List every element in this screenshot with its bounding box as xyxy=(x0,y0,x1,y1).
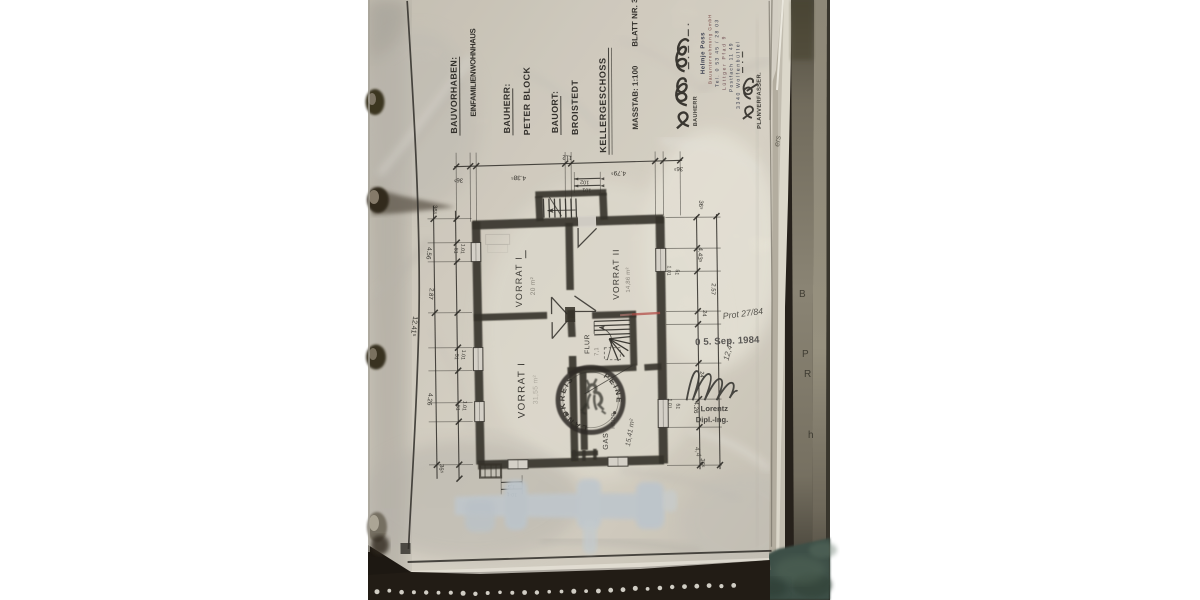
svg-text:51: 51 xyxy=(454,404,461,410)
svg-text:51: 51 xyxy=(452,248,459,254)
svg-text:24: 24 xyxy=(701,310,707,317)
svg-text:Helmje Poss: Helmje Poss xyxy=(700,32,706,74)
svg-text:14,86 m²: 14,86 m² xyxy=(626,267,632,292)
svg-text:1.01: 1.01 xyxy=(459,349,466,360)
svg-text:BLATT NR. 3: BLATT NR. 3 xyxy=(630,0,639,47)
svg-text:7,1: 7,1 xyxy=(594,347,600,356)
svg-text:4.79⁵: 4.79⁵ xyxy=(610,169,626,177)
svg-text:4.43⁵: 4.43⁵ xyxy=(696,247,704,263)
svg-text:GAS: GAS xyxy=(601,432,610,449)
svg-text:VORRAT I: VORRAT I xyxy=(516,362,527,419)
svg-text:1.01: 1.01 xyxy=(461,400,468,411)
svg-text:51: 51 xyxy=(453,354,460,360)
svg-text:31,55 m²: 31,55 m² xyxy=(532,375,539,405)
svg-text:36⁵: 36⁵ xyxy=(697,200,705,210)
svg-text:PETER BLOCK: PETER BLOCK xyxy=(522,67,532,136)
svg-text:h: h xyxy=(808,430,814,441)
svg-text:4.56: 4.56 xyxy=(424,247,432,261)
svg-text:20 m²: 20 m² xyxy=(530,276,537,295)
svg-text:36⁵: 36⁵ xyxy=(437,464,445,474)
svg-text:BAUHERR:: BAUHERR: xyxy=(502,83,512,133)
svg-text:Postfach 11 49: Postfach 11 49 xyxy=(728,42,734,92)
svg-text:B: B xyxy=(799,289,806,300)
svg-text:4.26: 4.26 xyxy=(692,401,700,414)
svg-text:BAUHERR: BAUHERR xyxy=(693,96,699,126)
svg-text:Dipl.-Ing.: Dipl.-Ing. xyxy=(696,415,729,424)
svg-text:102: 102 xyxy=(580,178,589,185)
svg-text:BROISTEDT: BROISTEDT xyxy=(570,79,580,135)
svg-text:KELLERGESCHOSS: KELLERGESCHOSS xyxy=(598,57,609,152)
svg-text:3340 Wolfenbüttel: 3340 Wolfenbüttel xyxy=(735,40,741,109)
svg-text:Tel. 0 53 45 / 28 03: Tel. 0 53 45 / 28 03 xyxy=(714,19,720,88)
svg-text:1.01: 1.01 xyxy=(459,243,466,254)
svg-text:2.87: 2.87 xyxy=(427,288,434,301)
svg-text:Lorentz: Lorentz xyxy=(701,404,729,413)
svg-text:51: 51 xyxy=(673,269,679,275)
svg-text:Bauunternehmung GmbH: Bauunternehmung GmbH xyxy=(707,14,712,84)
svg-text:EINFAMILIENWOHNHAUS: EINFAMILIENWOHNHAUS xyxy=(468,28,478,116)
svg-text:36⁵: 36⁵ xyxy=(673,165,683,173)
svg-text:36⁵: 36⁵ xyxy=(430,205,438,215)
svg-text:36⁵: 36⁵ xyxy=(453,176,463,184)
svg-text:R: R xyxy=(804,369,811,380)
svg-text:112: 112 xyxy=(562,153,573,160)
svg-text:4.26: 4.26 xyxy=(425,393,433,407)
svg-text:MASSTAB: 1:100: MASSTAB: 1:100 xyxy=(631,65,640,130)
svg-text:BAUVORHABEN:: BAUVORHABEN: xyxy=(449,57,459,134)
svg-text:VORRAT II: VORRAT II xyxy=(611,249,621,300)
svg-text:36⁵: 36⁵ xyxy=(698,458,706,468)
svg-text:VORRAT I: VORRAT I xyxy=(514,256,524,307)
svg-text:2.57: 2.57 xyxy=(709,283,716,296)
svg-text:Lüttger Pfad 9: Lüttger Pfad 9 xyxy=(721,35,727,90)
svg-text:PLANVERFASSER.: PLANVERFASSER. xyxy=(757,72,763,129)
svg-text:P: P xyxy=(802,349,809,360)
svg-text:FLUR: FLUR xyxy=(584,334,591,354)
svg-text:51: 51 xyxy=(674,403,680,409)
svg-text:ers: ers xyxy=(772,135,783,148)
svg-text:4.38⁵: 4.38⁵ xyxy=(511,173,527,181)
svg-text:BAUORT:: BAUORT: xyxy=(550,91,560,133)
